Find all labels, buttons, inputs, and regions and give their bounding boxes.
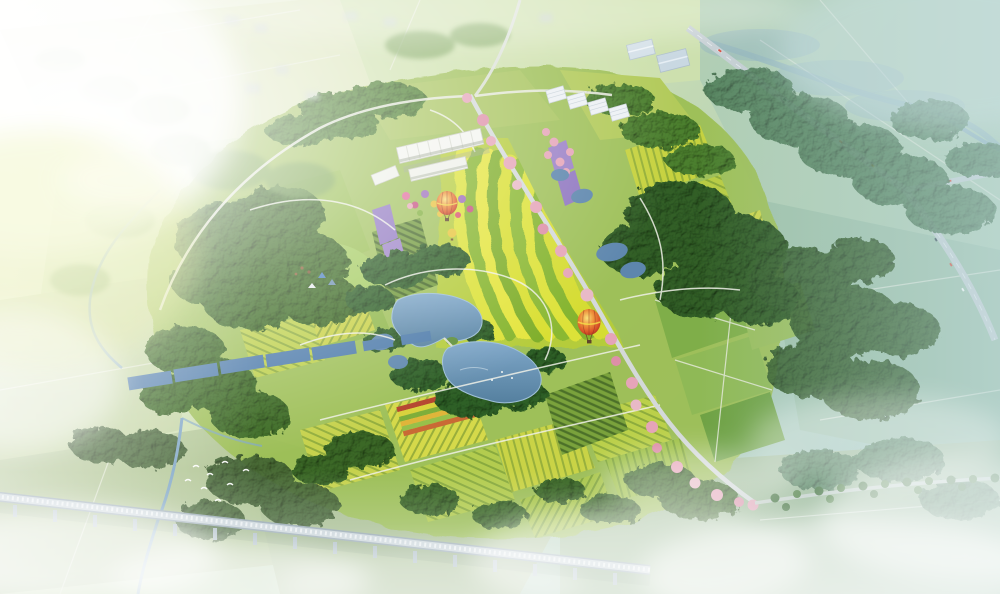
aerial-scene: [0, 0, 1000, 594]
rendering-canvas: [0, 0, 1000, 594]
atmosphere: [0, 0, 1000, 594]
